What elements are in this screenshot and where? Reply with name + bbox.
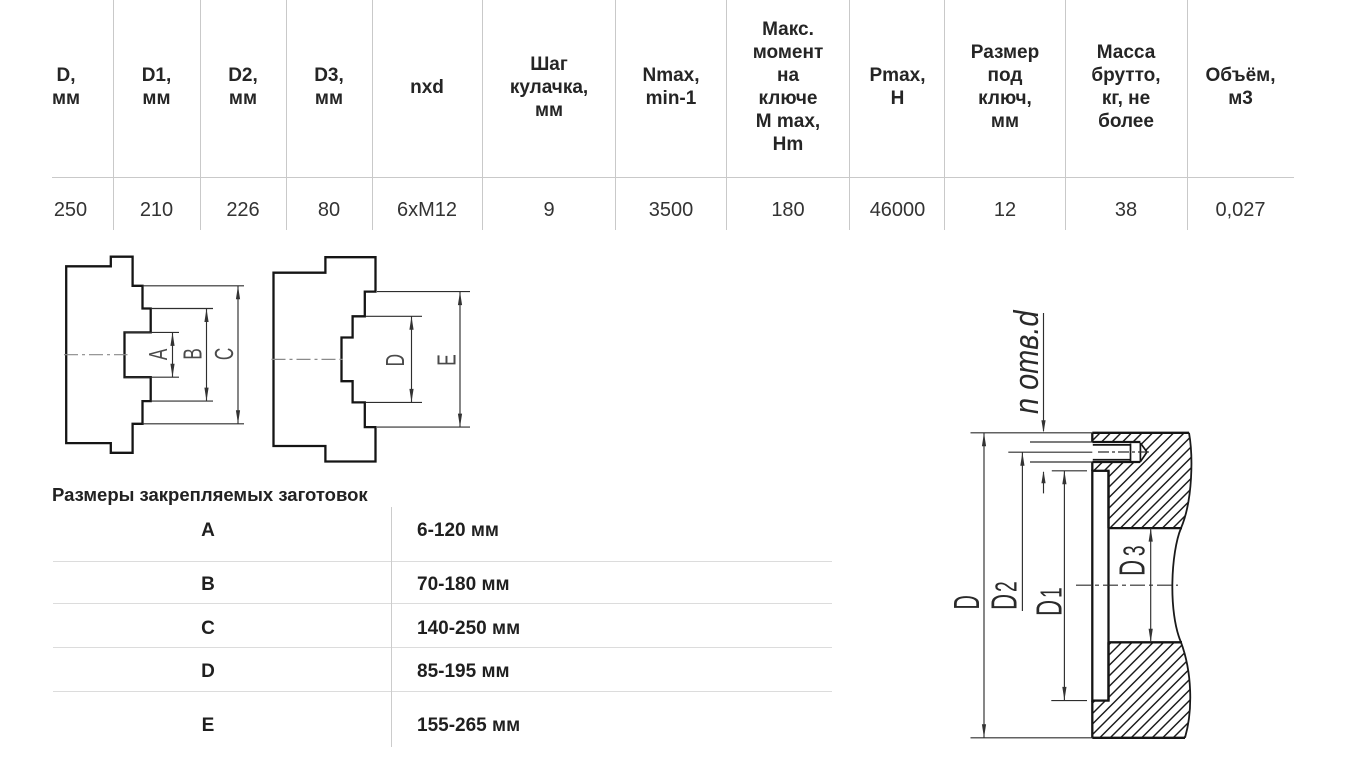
svg-text:E: E [432, 354, 462, 365]
svg-text:B: B [178, 348, 208, 359]
svg-text:D: D [380, 354, 410, 366]
svg-text:D: D [948, 595, 988, 609]
svg-text:D3: D3 [1113, 545, 1153, 576]
svg-text:D1: D1 [1030, 587, 1070, 616]
svg-text:n отв.d: n отв.d [1007, 309, 1046, 414]
svg-text:C: C [210, 348, 240, 360]
svg-text:D2: D2 [985, 581, 1025, 610]
svg-text:A: A [143, 348, 173, 360]
